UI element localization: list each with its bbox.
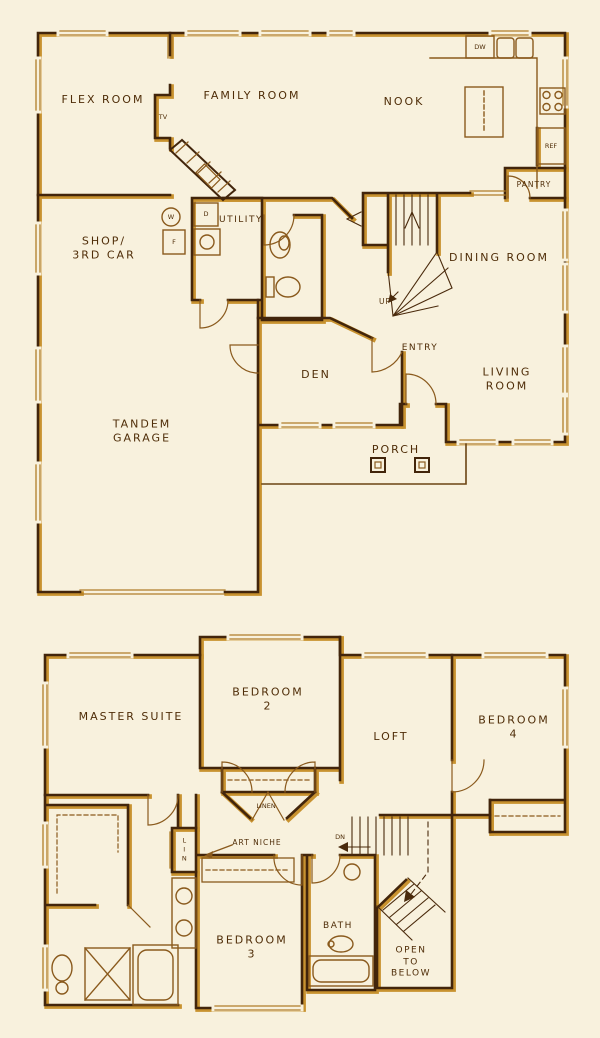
label-loft: LOFT [373, 730, 408, 744]
label-dishwasher: DW [474, 43, 485, 51]
label-dn: DN [335, 833, 345, 841]
label-den: DEN [301, 368, 331, 382]
label-entry: ENTRY [402, 343, 439, 355]
label-refrigerator: REF [545, 142, 557, 150]
floorplan-page: { "colors": { "paper": "#f8f1dd", "ink":… [0, 0, 600, 1038]
label-linen: LINEN [256, 802, 275, 810]
label-bedroom-2: BEDROOM 2 [232, 686, 303, 715]
label-master-suite: MASTER SUITE [79, 710, 184, 724]
label-bedroom-3: BEDROOM 3 [216, 934, 287, 963]
label-water-heater: W [168, 213, 174, 221]
labels-layer: FLEX ROOM TV FAMILY ROOM NOOK DW REF PAN… [0, 0, 600, 1038]
label-shop-3rd-car: SHOP/ 3RD CAR [72, 235, 135, 264]
label-porch: PORCH [372, 443, 420, 457]
label-art-niche: ART NICHE [232, 838, 281, 848]
label-nook: NOOK [384, 95, 425, 109]
label-dryer: D [203, 210, 208, 218]
label-flex-room: FLEX ROOM [62, 93, 145, 107]
label-furnace: F [172, 238, 176, 246]
label-bedroom-4: BEDROOM 4 [478, 714, 549, 743]
label-family-room: FAMILY ROOM [204, 89, 301, 103]
label-living-room: LIVING ROOM [461, 366, 554, 395]
label-open-to-below: OPEN TO BELOW [391, 945, 431, 980]
label-pantry: PANTRY [517, 180, 552, 190]
label-utility: UTILITY [219, 215, 263, 227]
label-tv: TV [159, 113, 167, 121]
label-lin: LIN [181, 837, 188, 864]
label-dining-room: DINING ROOM [449, 251, 549, 265]
label-up: UP [379, 297, 391, 307]
label-bath: BATH [323, 921, 353, 933]
label-tandem-garage: TANDEM GARAGE [113, 418, 172, 447]
